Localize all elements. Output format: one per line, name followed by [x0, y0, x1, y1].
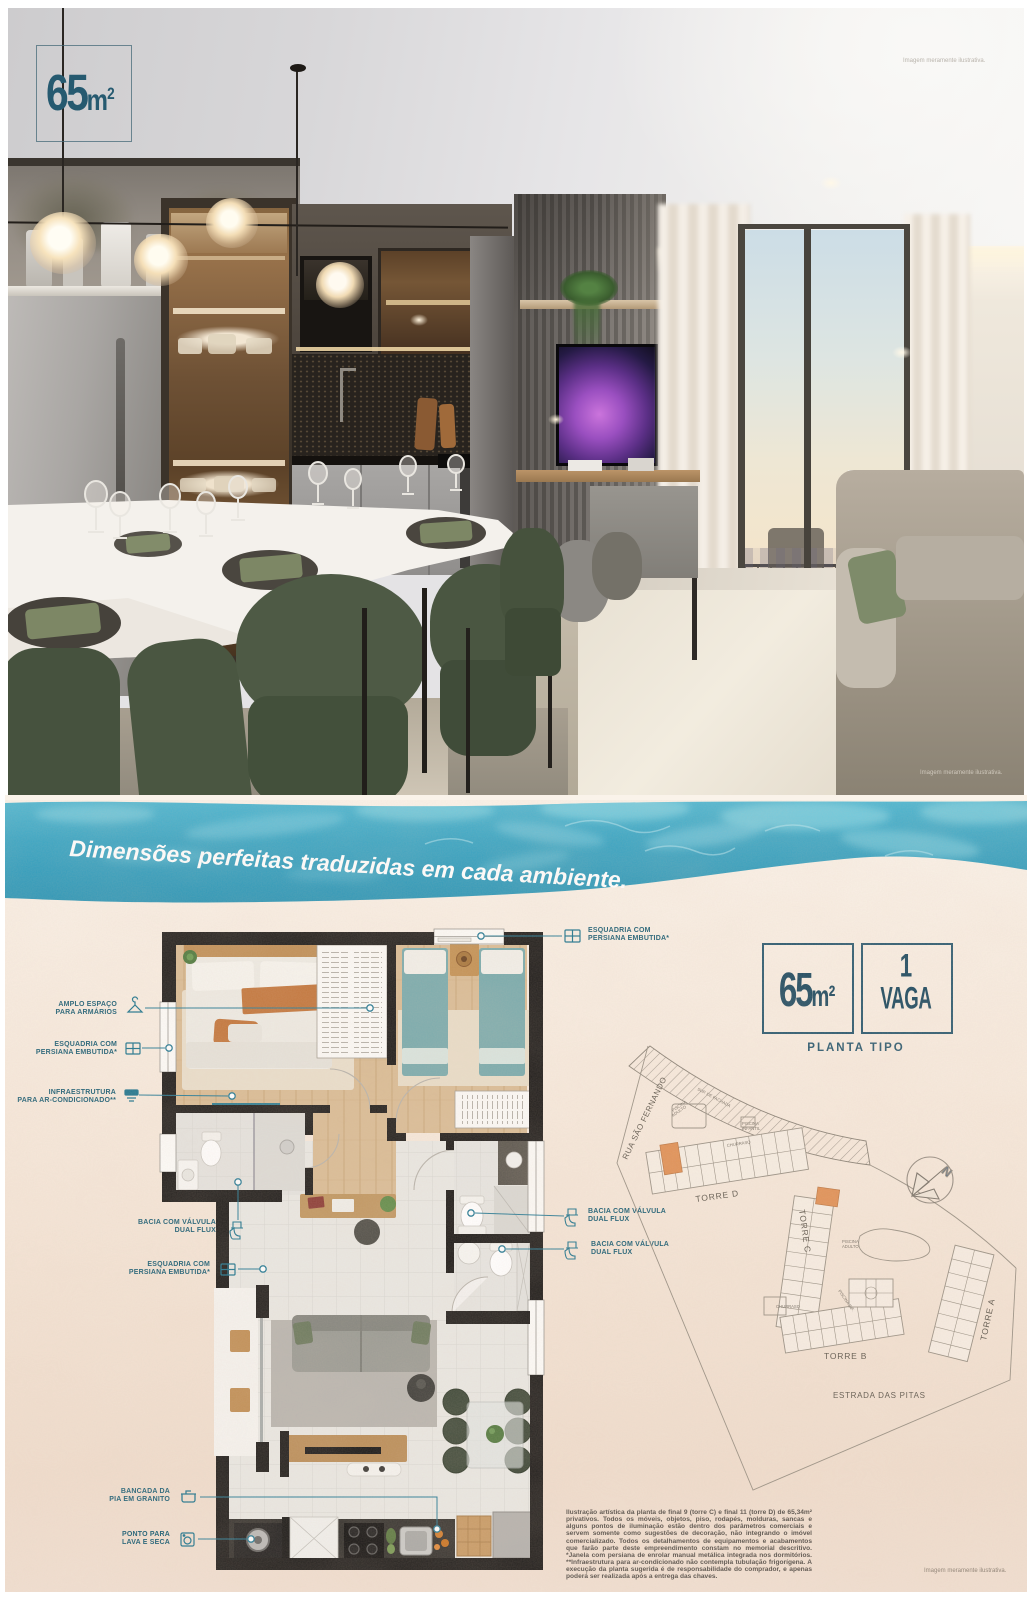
svg-text:INFANTIL: INFANTIL — [742, 1126, 761, 1131]
svg-text:CHURRASQ: CHURRASQ — [776, 1304, 801, 1309]
svg-text:TORRE D: TORRE D — [695, 1188, 740, 1204]
svg-text:ADULTO: ADULTO — [842, 1244, 859, 1249]
svg-text:TORRE B: TORRE B — [824, 1351, 867, 1361]
svg-text:ESTRADA DAS PITAS: ESTRADA DAS PITAS — [833, 1391, 926, 1400]
